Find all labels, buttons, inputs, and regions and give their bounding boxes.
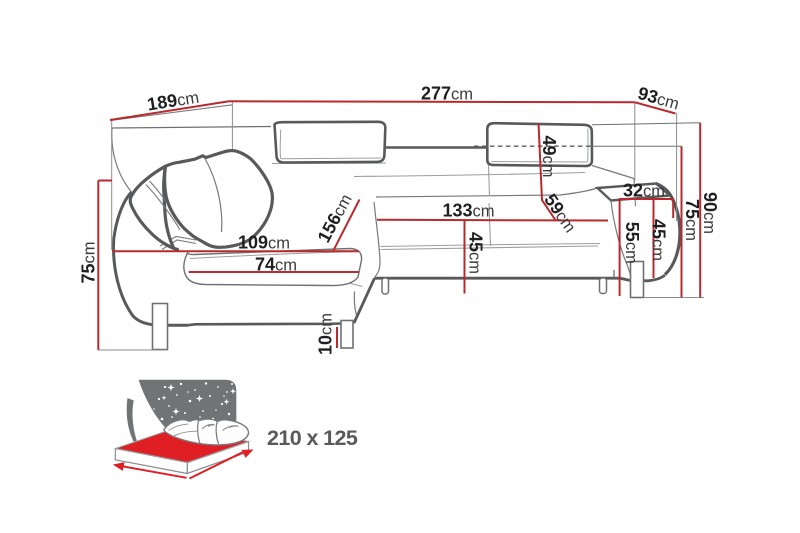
svg-text:277cm: 277cm (421, 84, 473, 104)
svg-text:10cm: 10cm (316, 313, 336, 355)
svg-text:90cm: 90cm (700, 192, 720, 234)
svg-text:49cm: 49cm (539, 135, 559, 177)
svg-text:45cm: 45cm (649, 219, 669, 261)
svg-text:210 x 125: 210 x 125 (267, 426, 358, 450)
svg-text:55cm: 55cm (622, 222, 642, 264)
svg-text:45cm: 45cm (466, 232, 486, 274)
svg-text:109cm: 109cm (238, 233, 290, 253)
svg-text:75cm: 75cm (79, 241, 99, 283)
svg-text:75cm: 75cm (682, 199, 702, 241)
svg-text:32cm: 32cm (623, 181, 665, 201)
svg-text:74cm: 74cm (255, 255, 297, 275)
svg-text:133cm: 133cm (442, 200, 494, 220)
